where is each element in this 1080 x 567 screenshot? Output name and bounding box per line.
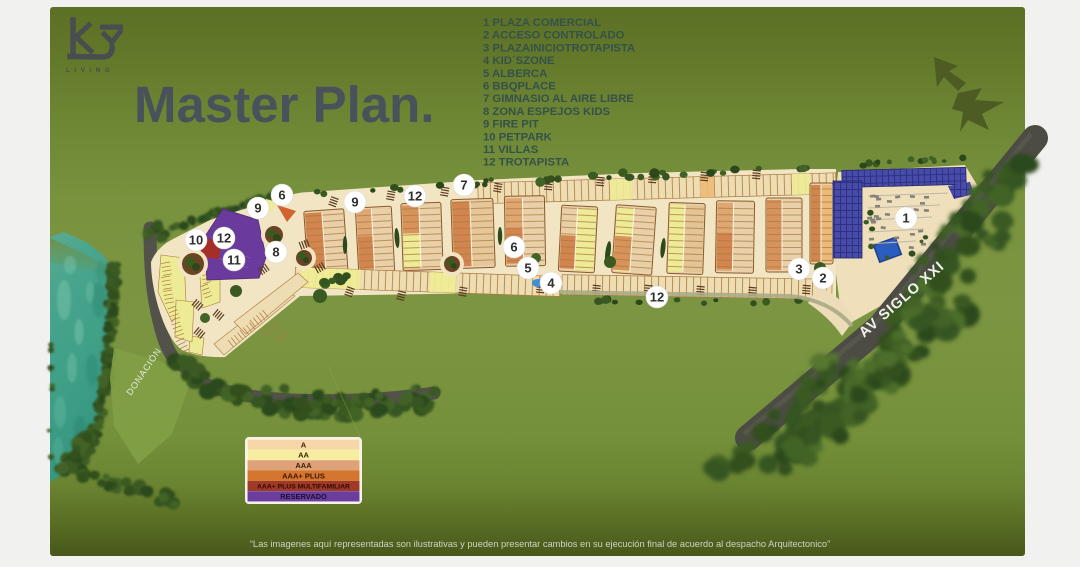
svg-text:AAA: AAA (295, 461, 312, 470)
svg-text:11: 11 (227, 253, 241, 268)
svg-text:2 ACCESO CONTROLADO: 2 ACCESO CONTROLADO (483, 30, 625, 42)
svg-text:A: A (301, 440, 307, 449)
svg-text:6: 6 (278, 188, 285, 203)
svg-text:6 BBQPLACE: 6 BBQPLACE (483, 81, 556, 93)
svg-text:10 PETPARK: 10 PETPARK (483, 131, 553, 143)
svg-text:12 TROTAPISTA: 12 TROTAPISTA (483, 157, 569, 169)
svg-text:5: 5 (524, 261, 531, 276)
svg-text:12: 12 (217, 231, 231, 246)
svg-text:Master Plan.: Master Plan. (134, 76, 434, 133)
svg-text:4: 4 (547, 276, 555, 291)
svg-text:1: 1 (902, 211, 909, 226)
svg-text:RESERVADO: RESERVADO (280, 492, 327, 501)
svg-text:5 ALBERCA: 5 ALBERCA (483, 68, 547, 80)
svg-text:AAA+ PLUS: AAA+ PLUS (282, 471, 325, 480)
svg-text:9: 9 (351, 195, 358, 210)
svg-text:9: 9 (254, 201, 261, 216)
svg-text:AA: AA (298, 451, 309, 460)
svg-text:10: 10 (189, 233, 203, 248)
svg-text:6: 6 (510, 240, 517, 255)
svg-text:3 PLAZAINICIOTROTAPISTA: 3 PLAZAINICIOTROTAPISTA (483, 42, 635, 54)
svg-text:12: 12 (650, 290, 664, 305)
svg-text:2: 2 (819, 271, 826, 286)
svg-text:8 ZONA ESPEJOS KIDS: 8 ZONA ESPEJOS KIDS (483, 106, 610, 118)
svg-text:7: 7 (460, 178, 467, 193)
svg-text:“Las imagenes aquí representad: “Las imagenes aquí representadas son ilu… (250, 539, 830, 549)
svg-text:3: 3 (795, 262, 802, 277)
svg-text:AAA+ PLUS MULTIFAMILIAR: AAA+ PLUS MULTIFAMILIAR (257, 484, 350, 491)
svg-text:8: 8 (272, 245, 279, 260)
svg-text:7 GIMNASIO AL AIRE LIBRE: 7 GIMNASIO AL AIRE LIBRE (483, 93, 634, 105)
svg-text:12: 12 (408, 189, 422, 204)
svg-text:9 FIRE PIT: 9 FIRE PIT (483, 119, 539, 131)
svg-text:4 KID´SZONE: 4 KID´SZONE (483, 55, 555, 67)
svg-text:1 PLAZA COMERCIAL: 1 PLAZA COMERCIAL (483, 17, 601, 29)
svg-text:11 VILLAS: 11 VILLAS (483, 144, 539, 156)
svg-text:LIVING: LIVING (66, 67, 114, 74)
